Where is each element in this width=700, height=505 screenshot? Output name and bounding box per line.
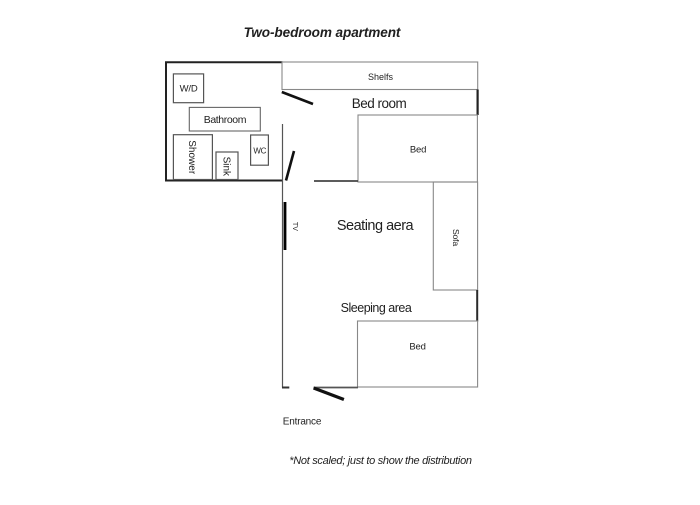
svg-text:Bed room: Bed room bbox=[352, 96, 407, 111]
svg-text:Shelfs: Shelfs bbox=[368, 72, 394, 82]
svg-text:TV: TV bbox=[291, 222, 298, 231]
svg-text:Sink: Sink bbox=[220, 157, 231, 177]
svg-text:Sleeping area: Sleeping area bbox=[341, 301, 412, 315]
svg-text:Bed: Bed bbox=[410, 145, 426, 156]
svg-text:W/D: W/D bbox=[180, 84, 198, 95]
svg-text:Bathroom: Bathroom bbox=[204, 114, 247, 126]
svg-text:Shower: Shower bbox=[186, 140, 197, 175]
svg-text:WC: WC bbox=[253, 146, 266, 155]
svg-text:Seating aera: Seating aera bbox=[337, 218, 415, 234]
svg-text:Two-bedroom apartment: Two-bedroom apartment bbox=[244, 25, 401, 40]
svg-text:*Not scaled; just to show the: *Not scaled; just to show the distributi… bbox=[289, 455, 472, 467]
svg-text:Entrance: Entrance bbox=[283, 416, 322, 427]
svg-text:Sofa: Sofa bbox=[451, 229, 461, 246]
svg-text:Bed: Bed bbox=[409, 342, 425, 353]
